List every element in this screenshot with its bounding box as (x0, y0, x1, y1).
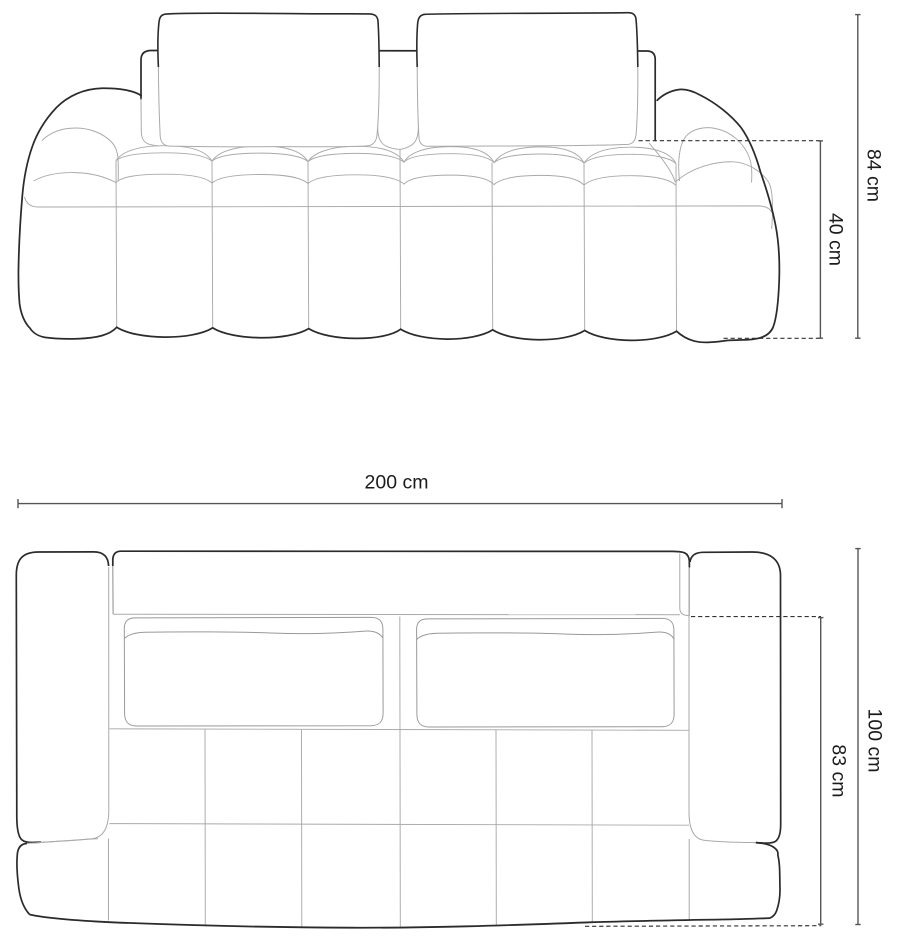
svg-text:40 cm: 40 cm (825, 213, 847, 266)
svg-text:84 cm: 84 cm (863, 149, 885, 202)
svg-text:100 cm: 100 cm (863, 709, 885, 773)
svg-text:83 cm: 83 cm (827, 744, 849, 797)
svg-text:200 cm: 200 cm (365, 472, 429, 494)
